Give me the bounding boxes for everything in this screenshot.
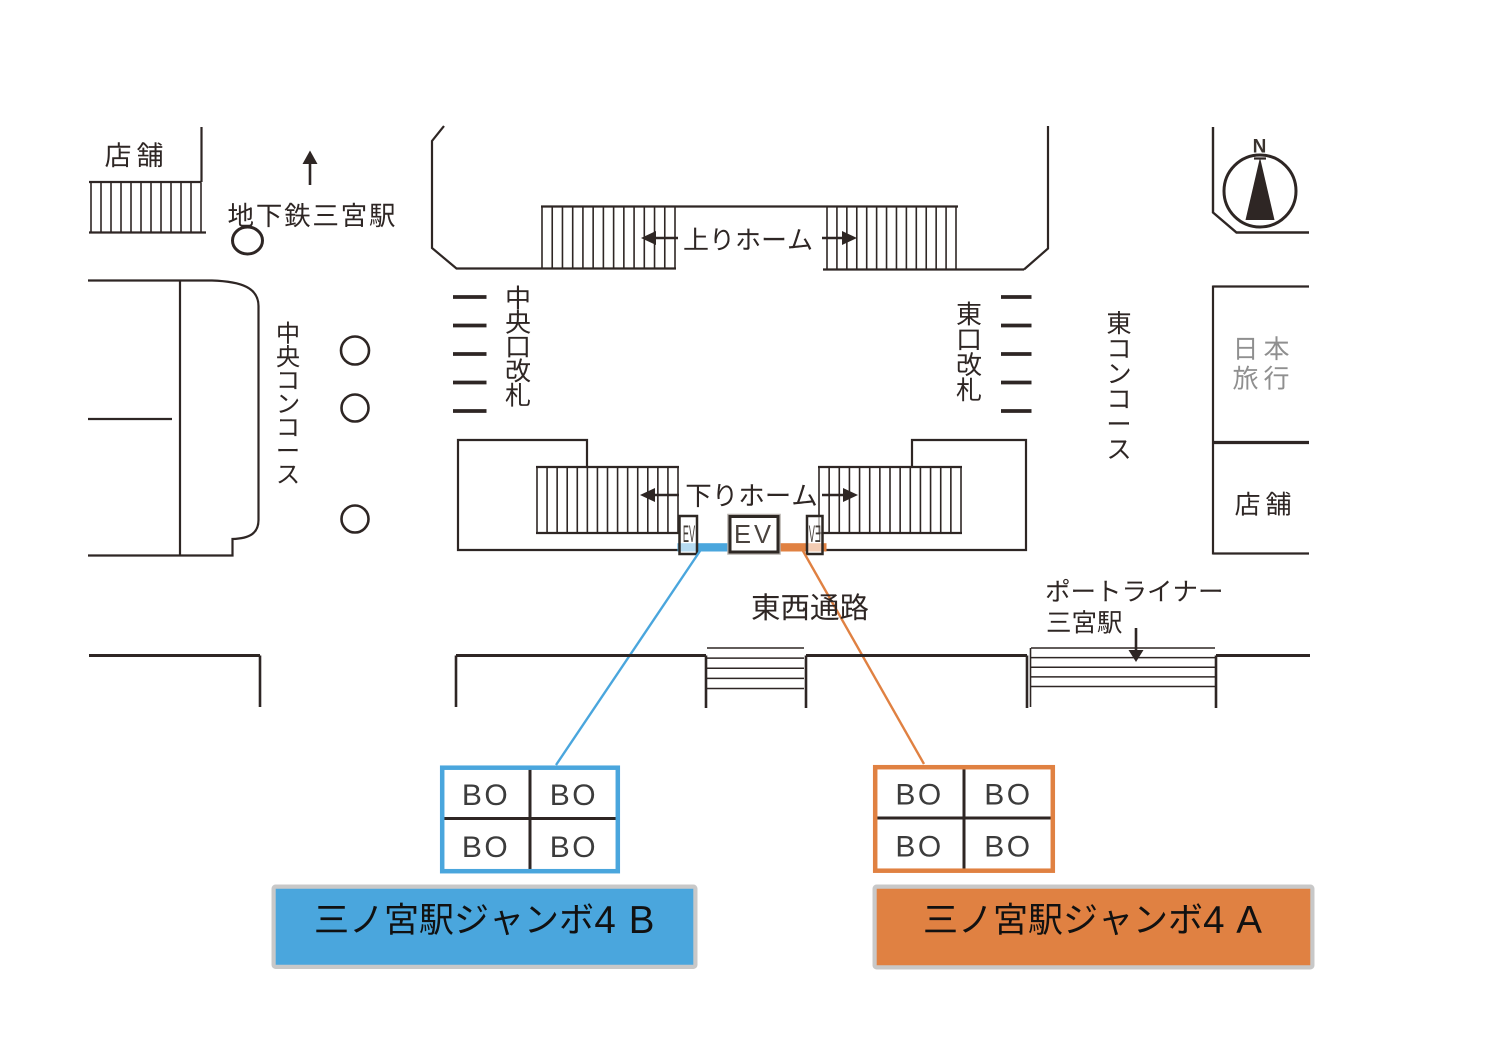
svg-text:BO: BO: [462, 779, 510, 812]
svg-text:BO: BO: [895, 830, 943, 863]
svg-text:EV: EV: [683, 521, 696, 547]
svg-text:BO: BO: [984, 779, 1032, 812]
svg-text:N: N: [1253, 137, 1267, 158]
svg-text:BO: BO: [984, 830, 1032, 863]
svg-text:B: B: [629, 899, 655, 942]
svg-text:BO: BO: [550, 831, 598, 864]
svg-text:EV: EV: [734, 521, 774, 549]
svg-text:BO: BO: [462, 831, 510, 864]
svg-text:BO: BO: [895, 779, 943, 812]
svg-text:A: A: [1236, 899, 1262, 942]
svg-text:4: 4: [594, 899, 615, 942]
svg-text:4: 4: [1203, 899, 1224, 942]
svg-text:EV: EV: [808, 521, 821, 547]
svg-text:BO: BO: [550, 779, 598, 812]
